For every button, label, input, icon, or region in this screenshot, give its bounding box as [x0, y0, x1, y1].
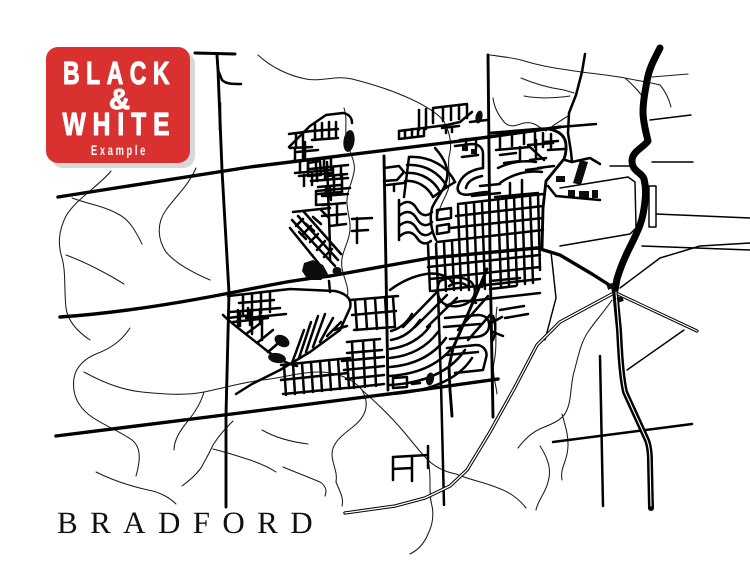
svg-text:BRADFORD: BRADFORD: [57, 505, 325, 540]
svg-text:WHITE: WHITE: [63, 106, 177, 142]
svg-text:Example: Example: [91, 142, 148, 158]
